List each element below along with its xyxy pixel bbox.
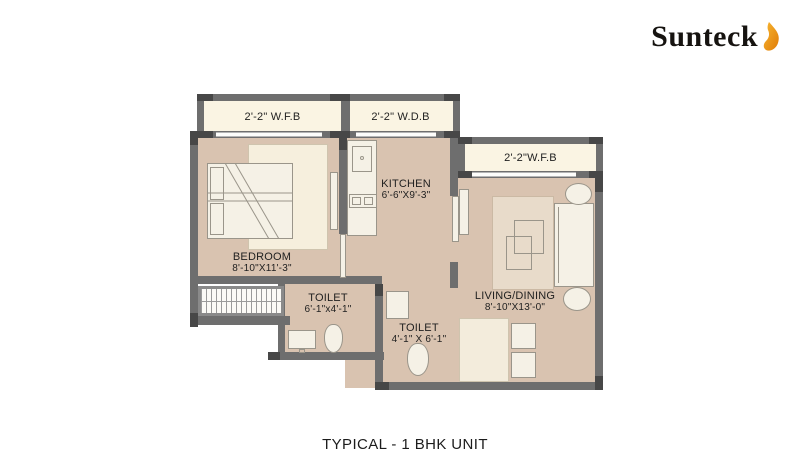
tv-unit — [459, 189, 469, 235]
wfb-right-label: 2'-2"W.F.B — [465, 152, 596, 164]
toilet1-washbasin — [288, 330, 316, 349]
kitchen-label: KITCHEN 6'-6"X9'-3" — [355, 178, 457, 202]
wall-joint — [197, 131, 213, 138]
left-outer-wall — [190, 131, 198, 327]
dining-table — [459, 318, 509, 382]
wall-joint — [330, 131, 350, 138]
toilet2-label: TOILET 4'-1" X 6'-1" — [378, 322, 460, 346]
ledge-bottom-wall — [193, 316, 290, 325]
wall-joint — [458, 171, 472, 178]
dining-chair — [511, 323, 536, 349]
wall-joint — [190, 313, 198, 327]
living-bottom-wall — [375, 382, 603, 390]
wall-joint — [197, 94, 213, 101]
bed-blanket-lines — [207, 163, 293, 239]
toilet1-washbasin-stand — [299, 349, 305, 353]
wall-joint — [444, 94, 460, 101]
wall-joint — [595, 376, 603, 390]
wall-joint — [589, 137, 603, 144]
bedroom-top-window — [216, 132, 322, 137]
wdb-top-label: 2'-2" W.D.B — [350, 111, 451, 123]
wall-joint — [268, 352, 280, 360]
dining-chair — [511, 352, 536, 378]
wall-joint — [190, 131, 198, 145]
living-dining-label: LIVING/DINING 8'-10"X13'-0" — [462, 290, 568, 314]
wall-joint — [330, 94, 350, 101]
brand-logo: Sunteck — [651, 20, 782, 54]
bedroom-wardrobe — [330, 172, 338, 230]
wfb-top-label: 2'-2" W.F.B — [204, 111, 341, 123]
bedroom-bottom-wall — [198, 276, 382, 284]
wall-joint — [339, 138, 347, 150]
toilet1-bottom-wall — [268, 352, 384, 360]
living-right-wall — [595, 178, 603, 390]
brand-name: Sunteck — [651, 20, 758, 54]
toilet2-washbasin — [386, 291, 409, 319]
wall-joint — [375, 284, 383, 296]
plan-title: TYPICAL - 1 BHK UNIT — [250, 436, 560, 453]
side-table-top — [565, 183, 592, 205]
wall-joint — [375, 382, 389, 390]
coffee-table — [506, 236, 532, 270]
toilet1-label: TOILET 6'-1"x4'-1" — [288, 292, 368, 316]
kitchen-top-window — [356, 132, 436, 137]
wall-joint — [458, 137, 472, 144]
living-door-leaf — [452, 196, 459, 242]
flame-icon — [760, 22, 782, 54]
bedroom-ledge-window — [198, 286, 284, 316]
bedroom-door-leaf — [340, 234, 346, 278]
kitchen-living-wall-lower — [450, 262, 458, 288]
sofa-seat-line — [558, 207, 588, 283]
wall-joint — [595, 178, 603, 192]
bedroom-kitchen-divider-wall — [339, 138, 347, 234]
floor-plan-page: Sunteck — [0, 0, 800, 476]
toilet2-wc — [407, 343, 429, 376]
kitchen-sink-drain — [360, 156, 364, 160]
bedroom-label: BEDROOM 8'-10"X11'-3" — [212, 251, 312, 275]
living-top-window — [472, 172, 576, 177]
wall-joint — [589, 171, 603, 178]
toilet1-wc — [324, 324, 343, 353]
